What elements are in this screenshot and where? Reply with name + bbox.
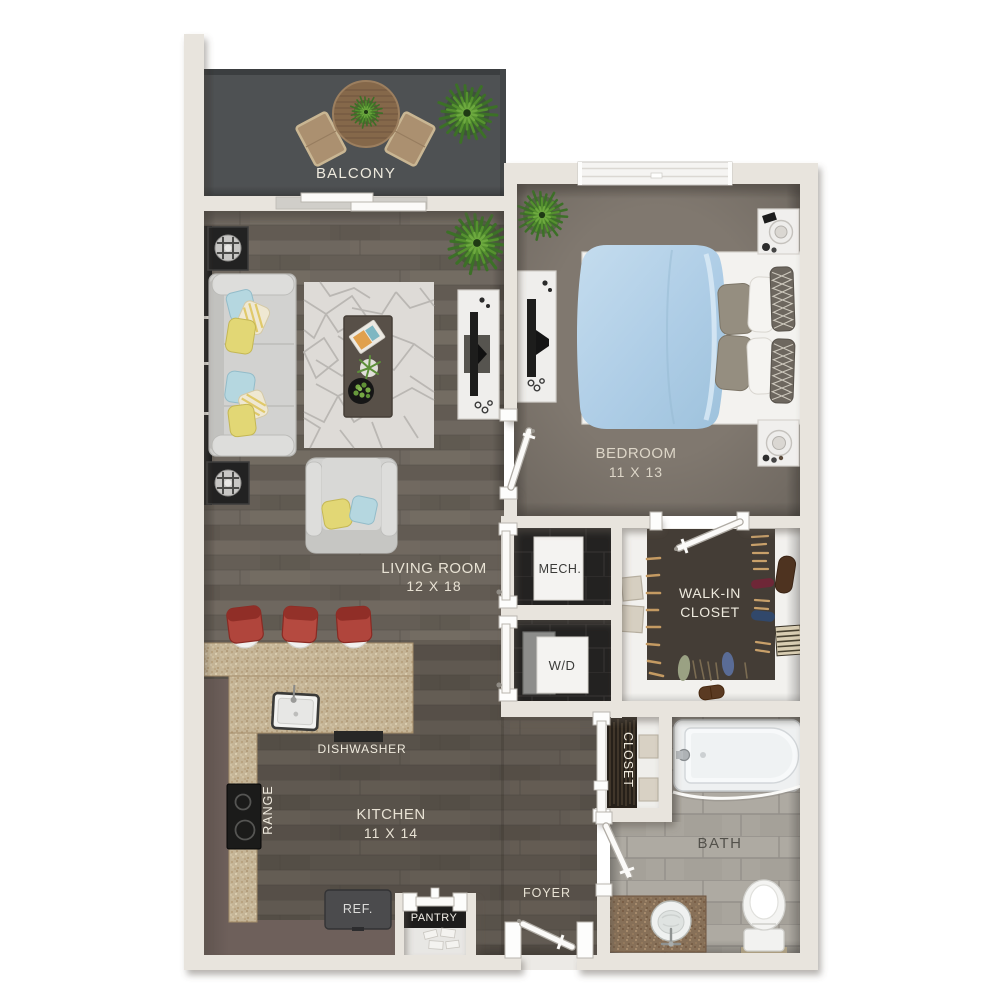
svg-text:BALCONY: BALCONY: [316, 165, 396, 182]
svg-text:BEDROOM: BEDROOM: [595, 445, 676, 462]
svg-text:11 X 14: 11 X 14: [364, 825, 418, 841]
svg-text:CLOSET: CLOSET: [680, 604, 740, 620]
svg-text:BATH: BATH: [698, 835, 743, 852]
svg-text:DISHWASHER: DISHWASHER: [318, 742, 407, 756]
svg-text:KITCHEN: KITCHEN: [356, 806, 425, 823]
svg-text:11 X 13: 11 X 13: [609, 464, 663, 480]
svg-text:LIVING ROOM: LIVING ROOM: [381, 560, 487, 577]
svg-text:MECH.: MECH.: [539, 562, 582, 576]
svg-text:CLOSET: CLOSET: [621, 732, 635, 788]
svg-text:W/D: W/D: [549, 658, 576, 673]
svg-text:RANGE: RANGE: [261, 785, 275, 834]
svg-text:12 X 18: 12 X 18: [406, 578, 461, 594]
svg-text:FOYER: FOYER: [523, 886, 571, 900]
svg-text:PANTRY: PANTRY: [411, 912, 458, 924]
svg-text:WALK-IN: WALK-IN: [679, 585, 741, 601]
svg-text:REF.: REF.: [343, 902, 373, 916]
